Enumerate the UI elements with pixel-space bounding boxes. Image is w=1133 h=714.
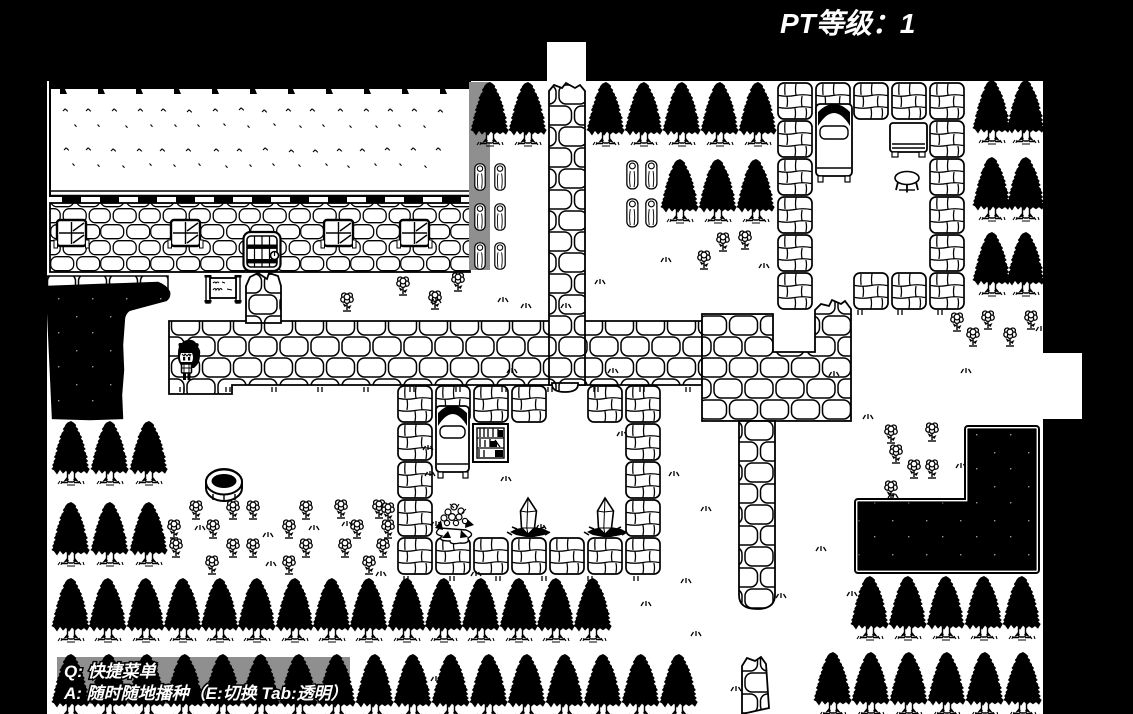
svg-text:PT等级：1: PT等级：1 <box>780 8 915 39</box>
svg-text:A: 随时随地播种（E:切换 Tab:透明）: A: 随时随地播种（E:切换 Tab:透明） <box>63 684 348 703</box>
svg-text:Q: 快捷菜单: Q: 快捷菜单 <box>64 662 157 681</box>
